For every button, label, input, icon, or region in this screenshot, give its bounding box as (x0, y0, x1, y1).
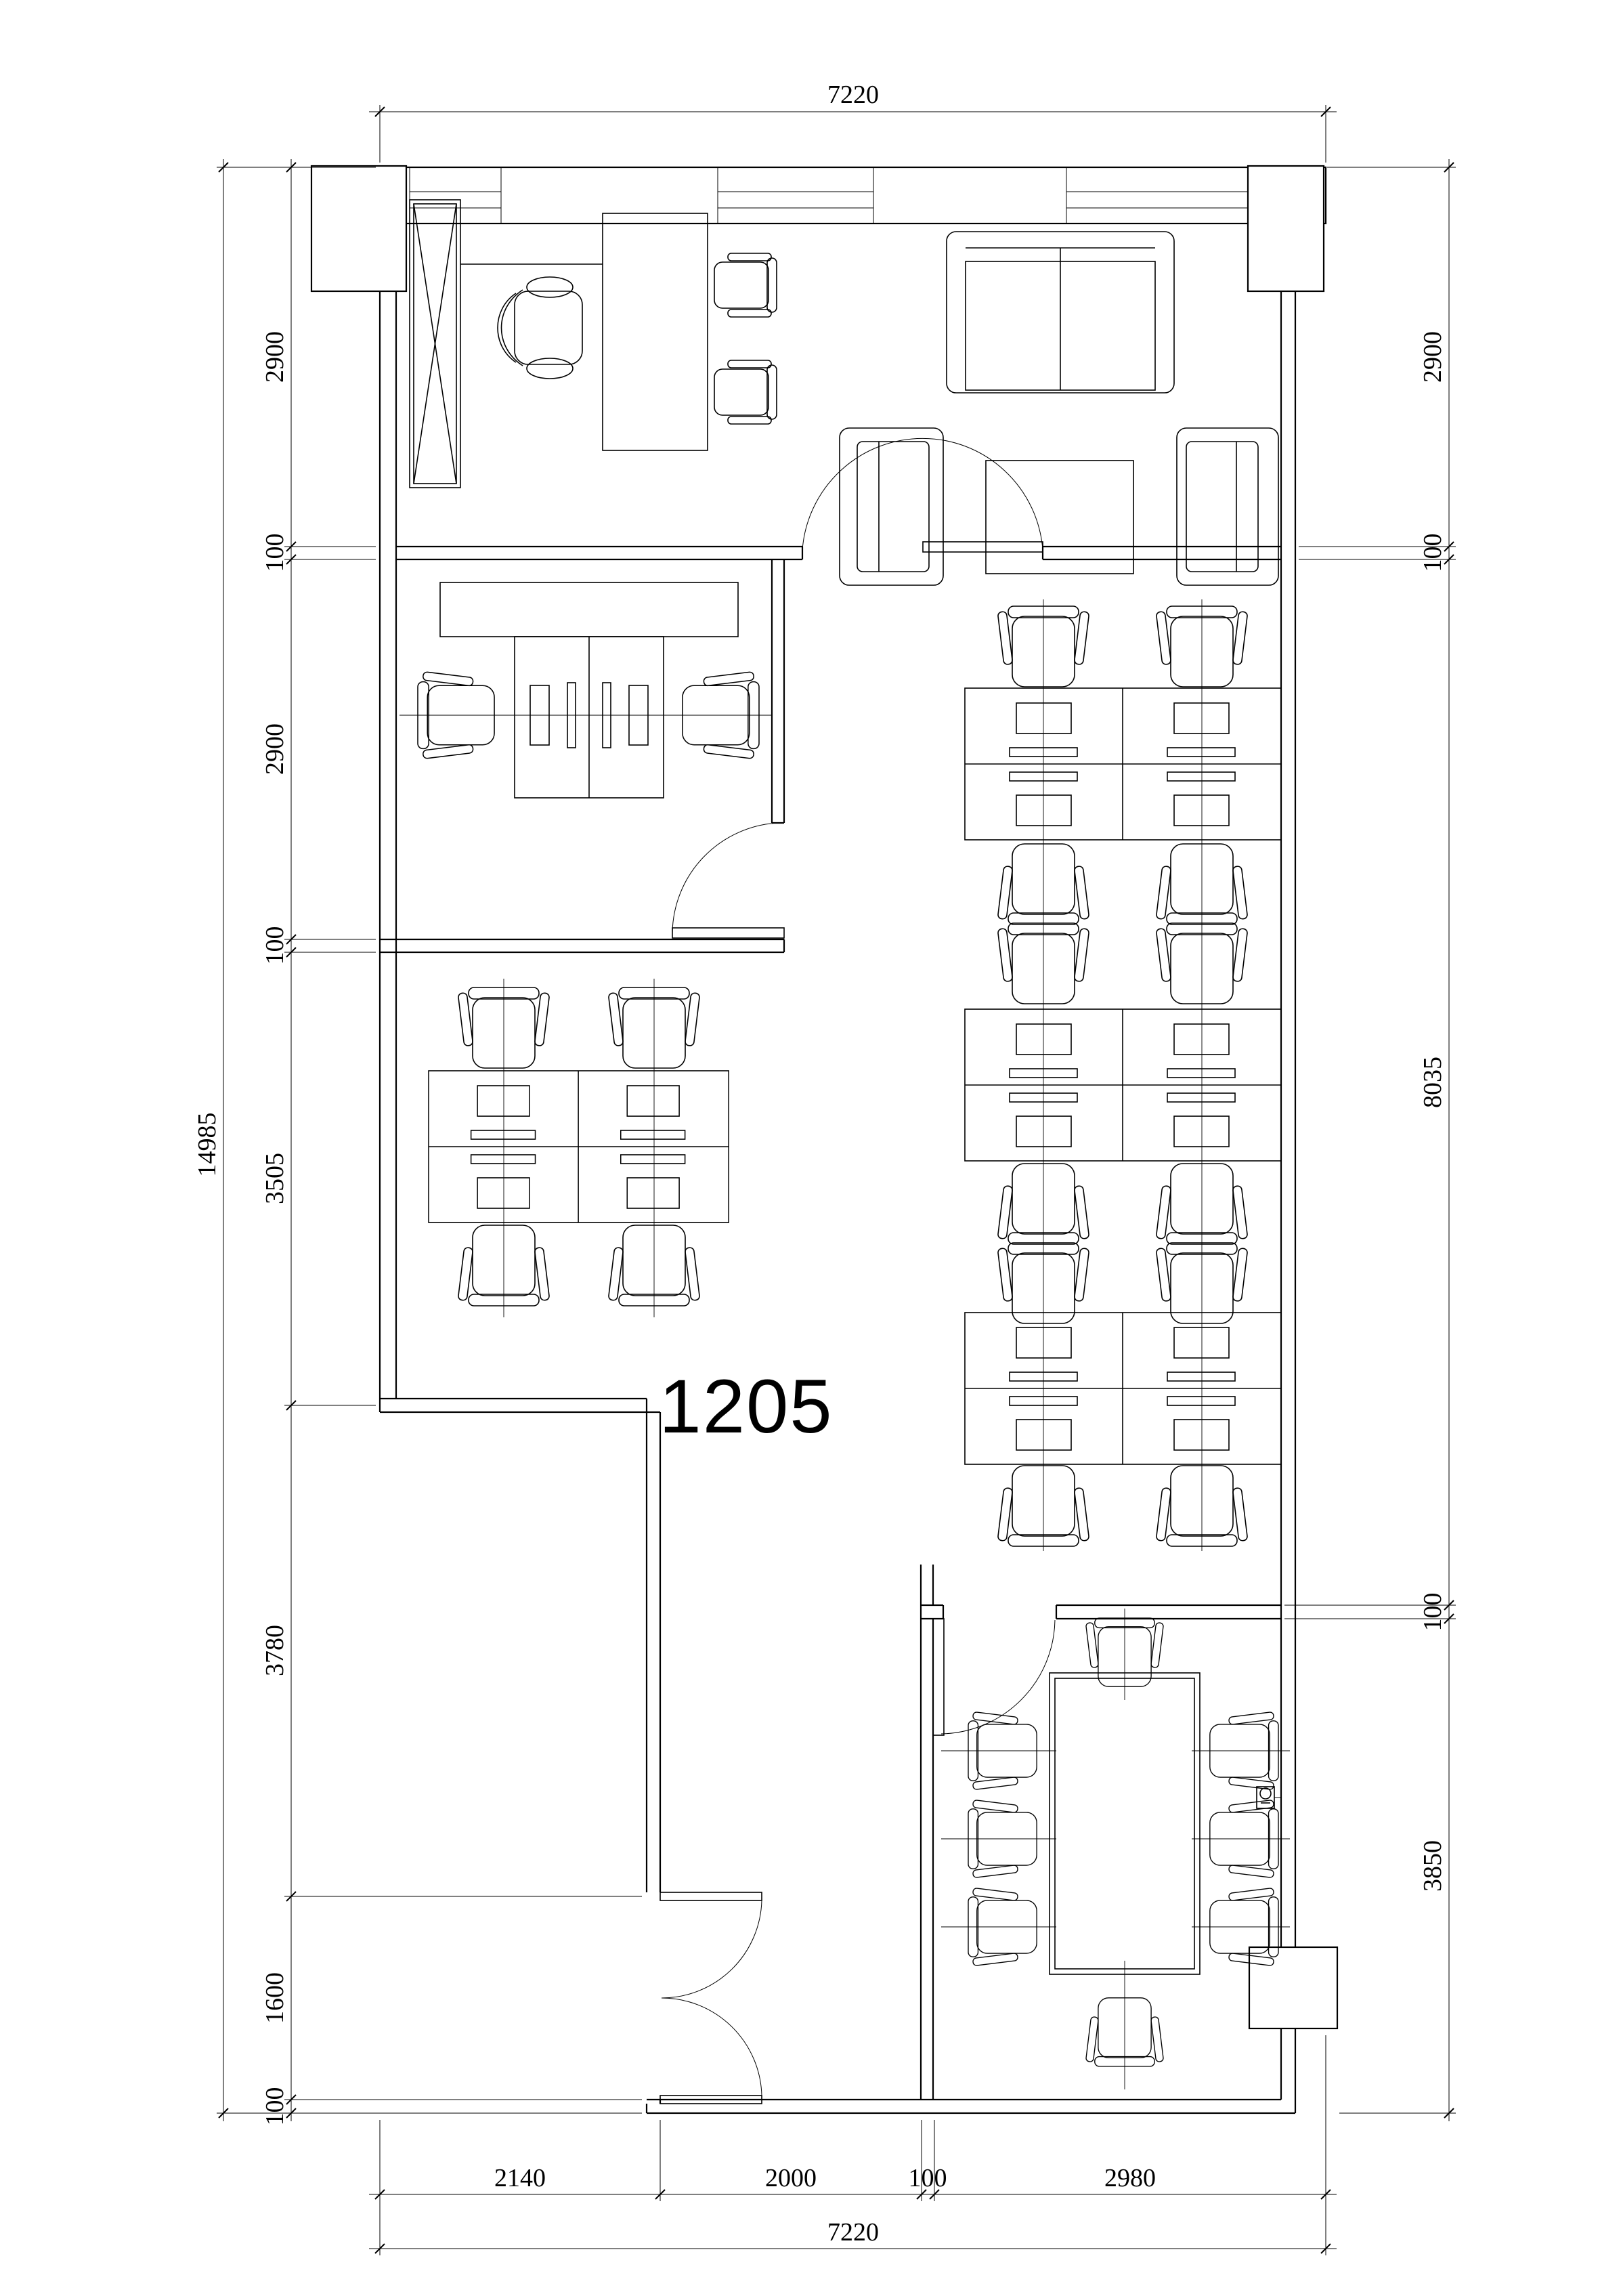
window-segment (410, 167, 501, 224)
room-number-label: 1205 (659, 1364, 833, 1449)
dim-left-seg: 100 (261, 2087, 289, 2126)
dim-right-seg: 3850 (1419, 1840, 1447, 1892)
dimension-bottom: 2140 2000 100 2980 7220 (369, 2035, 1337, 2255)
dim-left-seg: 3780 (261, 1625, 289, 1676)
executive-desk (603, 213, 708, 450)
coffee-table (986, 461, 1133, 574)
guest-chair (714, 360, 777, 424)
dimension-top: 7220 (369, 81, 1337, 163)
guest-chair (714, 253, 777, 317)
dim-bottom-seg: 100 (909, 2164, 947, 2192)
dim-left-seg: 3505 (261, 1153, 289, 1204)
conference-door (933, 1619, 1055, 1735)
dim-left-seg: 2900 (261, 723, 289, 775)
workstation-cluster-left (429, 979, 729, 1317)
window-band (410, 167, 1248, 224)
dim-left-seg: 100 (261, 534, 289, 572)
office1-door (802, 438, 1043, 552)
dim-left-total: 14985 (193, 1113, 221, 1177)
dim-bottom-seg: 2980 (1104, 2164, 1156, 2192)
dim-left-seg: 2900 (261, 331, 289, 383)
dim-bottom-seg: 2000 (765, 2164, 817, 2192)
dim-top-total: 7220 (827, 81, 879, 109)
armchair-left (840, 428, 943, 585)
office2-door (672, 823, 784, 938)
dim-bottom-total: 7220 (827, 2218, 879, 2247)
workstation-rows-right (965, 599, 1281, 1551)
dim-right-seg: 100 (1419, 1593, 1447, 1632)
wall-desk (440, 582, 738, 637)
floor-plan-svg: 1205 7220 2140 2000 100 2980 7220 (0, 0, 1600, 2296)
window-segment (1066, 167, 1248, 224)
desk-block (965, 1009, 1281, 1161)
outer-walls (380, 167, 1326, 2113)
executive-chair (498, 277, 582, 379)
armchair-right (1177, 428, 1278, 585)
floor-plan-page: 1205 7220 2140 2000 100 2980 7220 (0, 0, 1600, 2296)
window-segment (718, 167, 873, 224)
desk-block (965, 1313, 1281, 1464)
wall-socket-icon (1257, 1787, 1281, 1808)
file-cabinet (410, 200, 460, 488)
dim-right-seg: 100 (1419, 534, 1447, 572)
conference-room (941, 1609, 1290, 2089)
conference-table (1050, 1673, 1200, 1974)
dim-bottom-seg: 2140 (494, 2164, 546, 2192)
column-bottom-right (1249, 1947, 1337, 2028)
dim-right-seg: 8035 (1419, 1057, 1447, 1108)
sofa (947, 232, 1174, 393)
dim-left-seg: 1600 (261, 1972, 289, 2024)
office1-room (410, 200, 1278, 585)
double-entry-door (660, 1892, 762, 2104)
column-top-right (1248, 166, 1324, 291)
dimension-right: 2900 100 8035 100 3850 (1284, 159, 1456, 2121)
dim-left-seg: 100 (261, 927, 289, 965)
dimension-left: 2900 100 2900 100 3505 3780 1600 100 149… (193, 159, 642, 2126)
column-top-left (311, 166, 406, 291)
office2-room (399, 582, 772, 798)
desk-block (965, 688, 1281, 840)
dim-right-seg: 2900 (1419, 331, 1447, 383)
desk-block (429, 1071, 729, 1223)
